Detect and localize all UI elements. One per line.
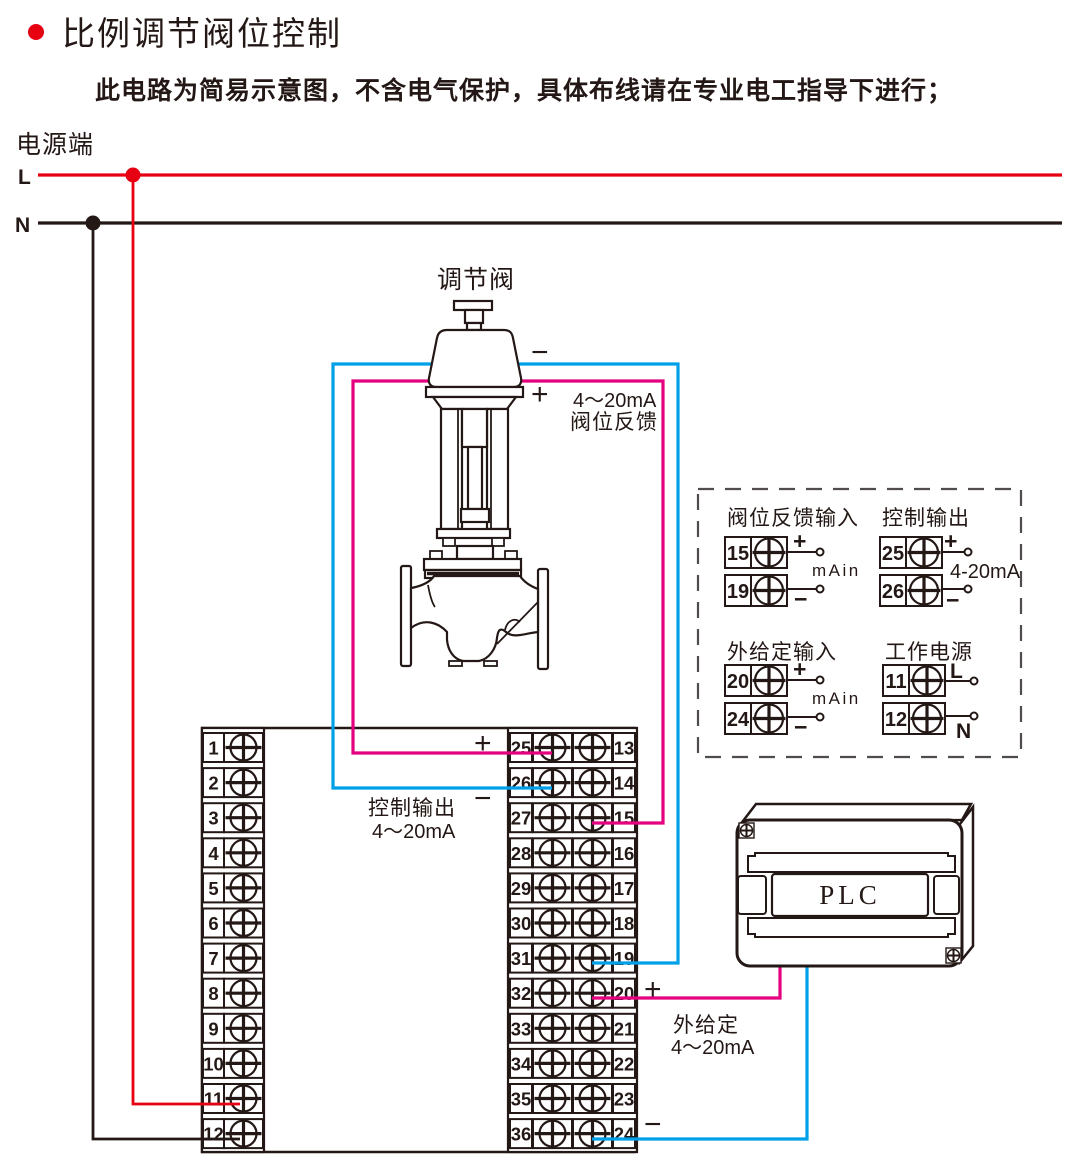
page-subtitle: 此电路为简易示意图，不含电气保护，具体布线请在专业电工指导下进行； xyxy=(95,76,953,105)
plc-left-module xyxy=(738,876,766,914)
terminal-number: 35 xyxy=(511,1089,532,1110)
screw-terminal xyxy=(573,1049,612,1078)
detail-terminal-20: 20 xyxy=(727,671,749,693)
group-feedback-title: 阀位反馈输入 xyxy=(727,507,859,530)
screw-terminal xyxy=(224,979,263,1008)
group-ext-title: 外给定输入 xyxy=(727,641,837,664)
valve-bolt-right xyxy=(492,538,504,546)
screw-terminal xyxy=(739,823,754,838)
screw-terminal xyxy=(533,979,572,1008)
terminal-number-cell: 22 xyxy=(613,1049,635,1078)
plc-top-face xyxy=(743,804,971,821)
terminal-number-cell: 34 xyxy=(510,1049,532,1078)
screw-terminal xyxy=(533,909,572,938)
valve-bolt-left xyxy=(443,538,455,546)
g3-minus: − xyxy=(794,714,807,740)
screw-terminal xyxy=(573,1084,612,1113)
terminal-number: 24 xyxy=(614,1124,635,1145)
terminal-number-cell: 9 xyxy=(203,1014,224,1043)
screw-terminal xyxy=(751,537,787,568)
screw-terminal xyxy=(533,944,572,973)
terminal-number-cell: 18 xyxy=(613,909,635,938)
valve-stem-coupling xyxy=(461,509,489,522)
g1-plus: + xyxy=(793,528,806,554)
terminal-number: 8 xyxy=(208,983,218,1004)
valve-stem-upper xyxy=(462,409,487,447)
terminal-number-cell: 3 xyxy=(203,803,224,832)
ext-setpoint-label-line2: 4～20mA xyxy=(671,1037,755,1059)
screw-terminal xyxy=(573,838,612,867)
terminal-number-cell: 16 xyxy=(613,838,635,867)
terminal-number: 29 xyxy=(511,878,532,899)
valve-stem-rod xyxy=(468,447,482,509)
terminal-number-cell: 31 xyxy=(510,944,532,973)
plc-label: PLC xyxy=(819,880,881,910)
terminal-number-cell: 27 xyxy=(510,803,532,832)
terminal-number: 12 xyxy=(203,1124,224,1145)
terminal-number: 2 xyxy=(208,773,218,794)
terminal-number-cell: 25 xyxy=(510,733,532,762)
terminal-number: 32 xyxy=(511,983,532,1004)
terminal-number: 30 xyxy=(511,913,532,934)
terminal-number-cell: 19 xyxy=(613,944,635,973)
screw-terminal xyxy=(573,1119,612,1148)
screw-terminal xyxy=(224,733,263,762)
terminal-number-cell: 28 xyxy=(510,838,532,867)
screw-terminal xyxy=(224,944,263,973)
screw-terminal xyxy=(533,838,572,867)
terminal-number-cell: 26 xyxy=(510,768,532,797)
terminal-number-cell: 36 xyxy=(510,1119,532,1148)
page-title: 比例调节阀位控制 xyxy=(62,15,342,52)
ext-setpoint-label-line1: 外给定 xyxy=(673,1014,739,1037)
terminal-number-cell: 35 xyxy=(510,1084,532,1113)
screw-terminal xyxy=(224,1084,263,1113)
ext-setpoint-plus: + xyxy=(644,973,662,1006)
screw-terminal xyxy=(224,909,263,938)
terminal-number-cell: 17 xyxy=(613,873,635,902)
g2-mid-label: 4-20mA xyxy=(950,561,1021,583)
terminal-number: 4 xyxy=(208,843,219,864)
valve-flange-bolt-left xyxy=(430,551,442,559)
screw-terminal xyxy=(909,665,945,696)
g1-mid-label: mAin xyxy=(812,561,861,580)
screw-terminal xyxy=(573,768,612,797)
screw-terminal xyxy=(573,909,612,938)
valve-pipe-flange-left xyxy=(401,566,411,666)
screw-terminal xyxy=(533,1049,572,1078)
screw-terminal xyxy=(751,703,787,734)
group-ctrl-title: 控制输出 xyxy=(882,507,970,530)
valve-plus-sign: + xyxy=(531,378,549,411)
valve-pipe-flange-right xyxy=(538,569,548,669)
terminal-number-cell: 11 xyxy=(203,1084,224,1113)
screw-terminal xyxy=(224,1049,263,1078)
terminal-number: 33 xyxy=(511,1018,532,1039)
g3-plus: + xyxy=(793,656,806,682)
terminal-number: 10 xyxy=(203,1053,224,1074)
terminal-number: 15 xyxy=(614,808,635,829)
terminal-number-cell: 2 xyxy=(203,768,224,797)
title-bullet-icon xyxy=(28,24,44,40)
screw-terminal xyxy=(533,768,572,797)
valve-top-flange xyxy=(424,559,521,570)
valve-body xyxy=(411,576,538,661)
screw-terminal xyxy=(573,803,612,832)
lead-24-end xyxy=(817,714,824,721)
screw-terminal xyxy=(906,537,942,568)
terminal-number: 14 xyxy=(614,773,635,794)
detail-terminal-19: 19 xyxy=(727,581,749,603)
detail-terminal-12: 12 xyxy=(885,709,907,731)
terminal-number-cell: 15 xyxy=(613,803,635,832)
valve-minus-sign: − xyxy=(531,336,549,369)
terminal-number: 23 xyxy=(614,1089,635,1110)
screw-terminal xyxy=(573,979,612,1008)
wiring-diagram-canvas: 比例调节阀位控制 此电路为简易示意图，不含电气保护，具体布线请在专业电工指导下进… xyxy=(0,0,1080,1170)
terminal-number-cell: 33 xyxy=(510,1014,532,1043)
screw-terminal xyxy=(224,803,263,832)
terminal-number: 16 xyxy=(614,843,635,864)
screw-terminal xyxy=(573,873,612,902)
screw-terminal xyxy=(573,1014,612,1043)
g2-minus: − xyxy=(946,587,959,613)
terminal-number: 9 xyxy=(208,1018,218,1039)
g4-live-label: L xyxy=(950,660,963,683)
screw-terminal xyxy=(224,1014,263,1043)
valve-actuator-base xyxy=(426,387,523,397)
detail-terminal-24: 24 xyxy=(727,709,750,731)
terminal-number: 1 xyxy=(208,738,218,759)
terminal-number-cell: 21 xyxy=(613,1014,635,1043)
lead-26-end xyxy=(965,586,972,593)
screw-terminal xyxy=(909,703,945,734)
terminal-number-cell: 8 xyxy=(203,979,224,1008)
ctrl-output-minus: − xyxy=(474,782,492,815)
valve-foot-right xyxy=(484,661,497,666)
screw-terminal xyxy=(533,1119,572,1148)
ctrl-output-plus: + xyxy=(474,727,492,760)
g3-mid-label: mAin xyxy=(812,689,861,708)
terminal-number-cell: 14 xyxy=(613,768,635,797)
terminal-number: 5 xyxy=(208,878,218,899)
screw-terminal xyxy=(751,665,787,696)
lead-25-end xyxy=(965,549,972,556)
screw-terminal xyxy=(946,948,961,963)
live-junction-dot xyxy=(126,168,141,183)
valve-handle-bar xyxy=(454,301,492,310)
valve-handle-stem xyxy=(465,310,483,323)
valve-yoke-plate xyxy=(437,529,510,538)
detail-terminal-26: 26 xyxy=(882,581,904,603)
terminal-number: 20 xyxy=(614,983,635,1004)
lead-19-end xyxy=(817,586,824,593)
plc-right-module xyxy=(934,876,959,914)
lead-20-end xyxy=(817,677,824,684)
ctrl-output-label-line2: 4～20mA xyxy=(372,821,456,843)
terminal-number-cell: 30 xyxy=(510,909,532,938)
valve-flange-bolt-right xyxy=(505,551,517,559)
terminal-number: 25 xyxy=(511,738,532,759)
terminal-number: 7 xyxy=(208,948,218,969)
screw-terminal xyxy=(573,944,612,973)
terminal-number: 34 xyxy=(511,1053,532,1074)
terminal-number-cell: 4 xyxy=(203,838,224,867)
terminal-number: 28 xyxy=(511,843,532,864)
terminal-number: 31 xyxy=(511,948,532,969)
screw-terminal xyxy=(533,733,572,762)
terminal-number: 6 xyxy=(208,913,218,934)
valve-title: 调节阀 xyxy=(437,266,515,294)
plc-bottom-slot xyxy=(748,918,955,937)
terminal-number-cell: 29 xyxy=(510,873,532,902)
screw-terminal xyxy=(224,768,263,797)
valve-actuator-body xyxy=(429,330,521,387)
neutral-line-label: N xyxy=(15,214,30,237)
valve-foot-left xyxy=(449,661,462,666)
feedback-note-line2: 阀位反馈 xyxy=(570,411,658,434)
neutral-junction-dot xyxy=(86,216,101,231)
screw-terminal xyxy=(224,1119,263,1148)
terminal-number-cell: 10 xyxy=(203,1049,224,1078)
terminal-number-cell: 32 xyxy=(510,979,532,1008)
plc-box: PLC xyxy=(737,804,973,966)
terminal-number: 18 xyxy=(614,913,635,934)
terminal-number-cell: 12 xyxy=(203,1119,224,1148)
terminal-number: 13 xyxy=(614,738,635,759)
terminal-number-cell: 6 xyxy=(203,909,224,938)
power-section-label: 电源端 xyxy=(16,131,94,159)
screw-terminal xyxy=(533,803,572,832)
terminal-number: 27 xyxy=(511,808,532,829)
g4-neutral-label: N xyxy=(956,720,971,743)
screw-terminal xyxy=(533,873,572,902)
terminal-number: 21 xyxy=(614,1018,635,1039)
detail-terminal-11: 11 xyxy=(885,671,906,693)
ctrl-output-label-line1: 控制输出 xyxy=(368,797,456,820)
terminal-number: 3 xyxy=(208,808,218,829)
terminal-number: 36 xyxy=(511,1124,532,1145)
terminal-number: 26 xyxy=(511,773,532,794)
terminal-detail-box: 阀位反馈输入 控制输出 外给定输入 工作电源 15 19 25 26 20 24… xyxy=(698,489,1021,757)
feedback-note-line1: 4～20mA xyxy=(573,390,657,412)
control-valve-drawing xyxy=(401,301,548,669)
screw-terminal xyxy=(906,575,942,606)
plc-top-slot xyxy=(748,853,955,872)
screw-terminal xyxy=(573,733,612,762)
detail-terminal-15: 15 xyxy=(727,543,749,565)
valve-actuator-bell xyxy=(433,397,516,409)
terminal-number-cell: 20 xyxy=(613,979,635,1008)
detail-terminal-25: 25 xyxy=(882,543,904,565)
valve-bonnet xyxy=(457,546,493,559)
lead-12-end xyxy=(971,713,978,720)
lead-15-end xyxy=(817,549,824,556)
terminal-number: 17 xyxy=(614,878,635,899)
terminal-number: 19 xyxy=(614,948,635,969)
terminal-number: 22 xyxy=(614,1053,635,1074)
screw-terminal xyxy=(224,838,263,867)
g2-plus: + xyxy=(944,528,957,554)
terminal-number: 11 xyxy=(204,1089,224,1110)
screw-terminal xyxy=(751,575,787,606)
ext-setpoint-minus: − xyxy=(644,1108,662,1141)
wiring-diagram-page: 比例调节阀位控制 此电路为简易示意图，不含电气保护，具体布线请在专业电工指导下进… xyxy=(0,0,1080,1170)
terminal-number-cell: 24 xyxy=(613,1119,635,1148)
live-line-label: L xyxy=(18,166,31,189)
screw-terminal xyxy=(533,1084,572,1113)
terminal-number-cell: 1 xyxy=(203,733,224,762)
terminal-number-cell: 23 xyxy=(613,1084,635,1113)
terminal-number-cell: 13 xyxy=(613,733,635,762)
terminal-number-cell: 5 xyxy=(203,873,224,902)
g1-minus: − xyxy=(794,586,807,612)
screw-terminal xyxy=(533,1014,572,1043)
lead-11-end xyxy=(971,678,978,685)
instrument-rear-panel: 123456789101112 251326142715281629173018… xyxy=(202,728,637,1152)
screw-terminal xyxy=(224,873,263,902)
terminal-number-cell: 7 xyxy=(203,944,224,973)
